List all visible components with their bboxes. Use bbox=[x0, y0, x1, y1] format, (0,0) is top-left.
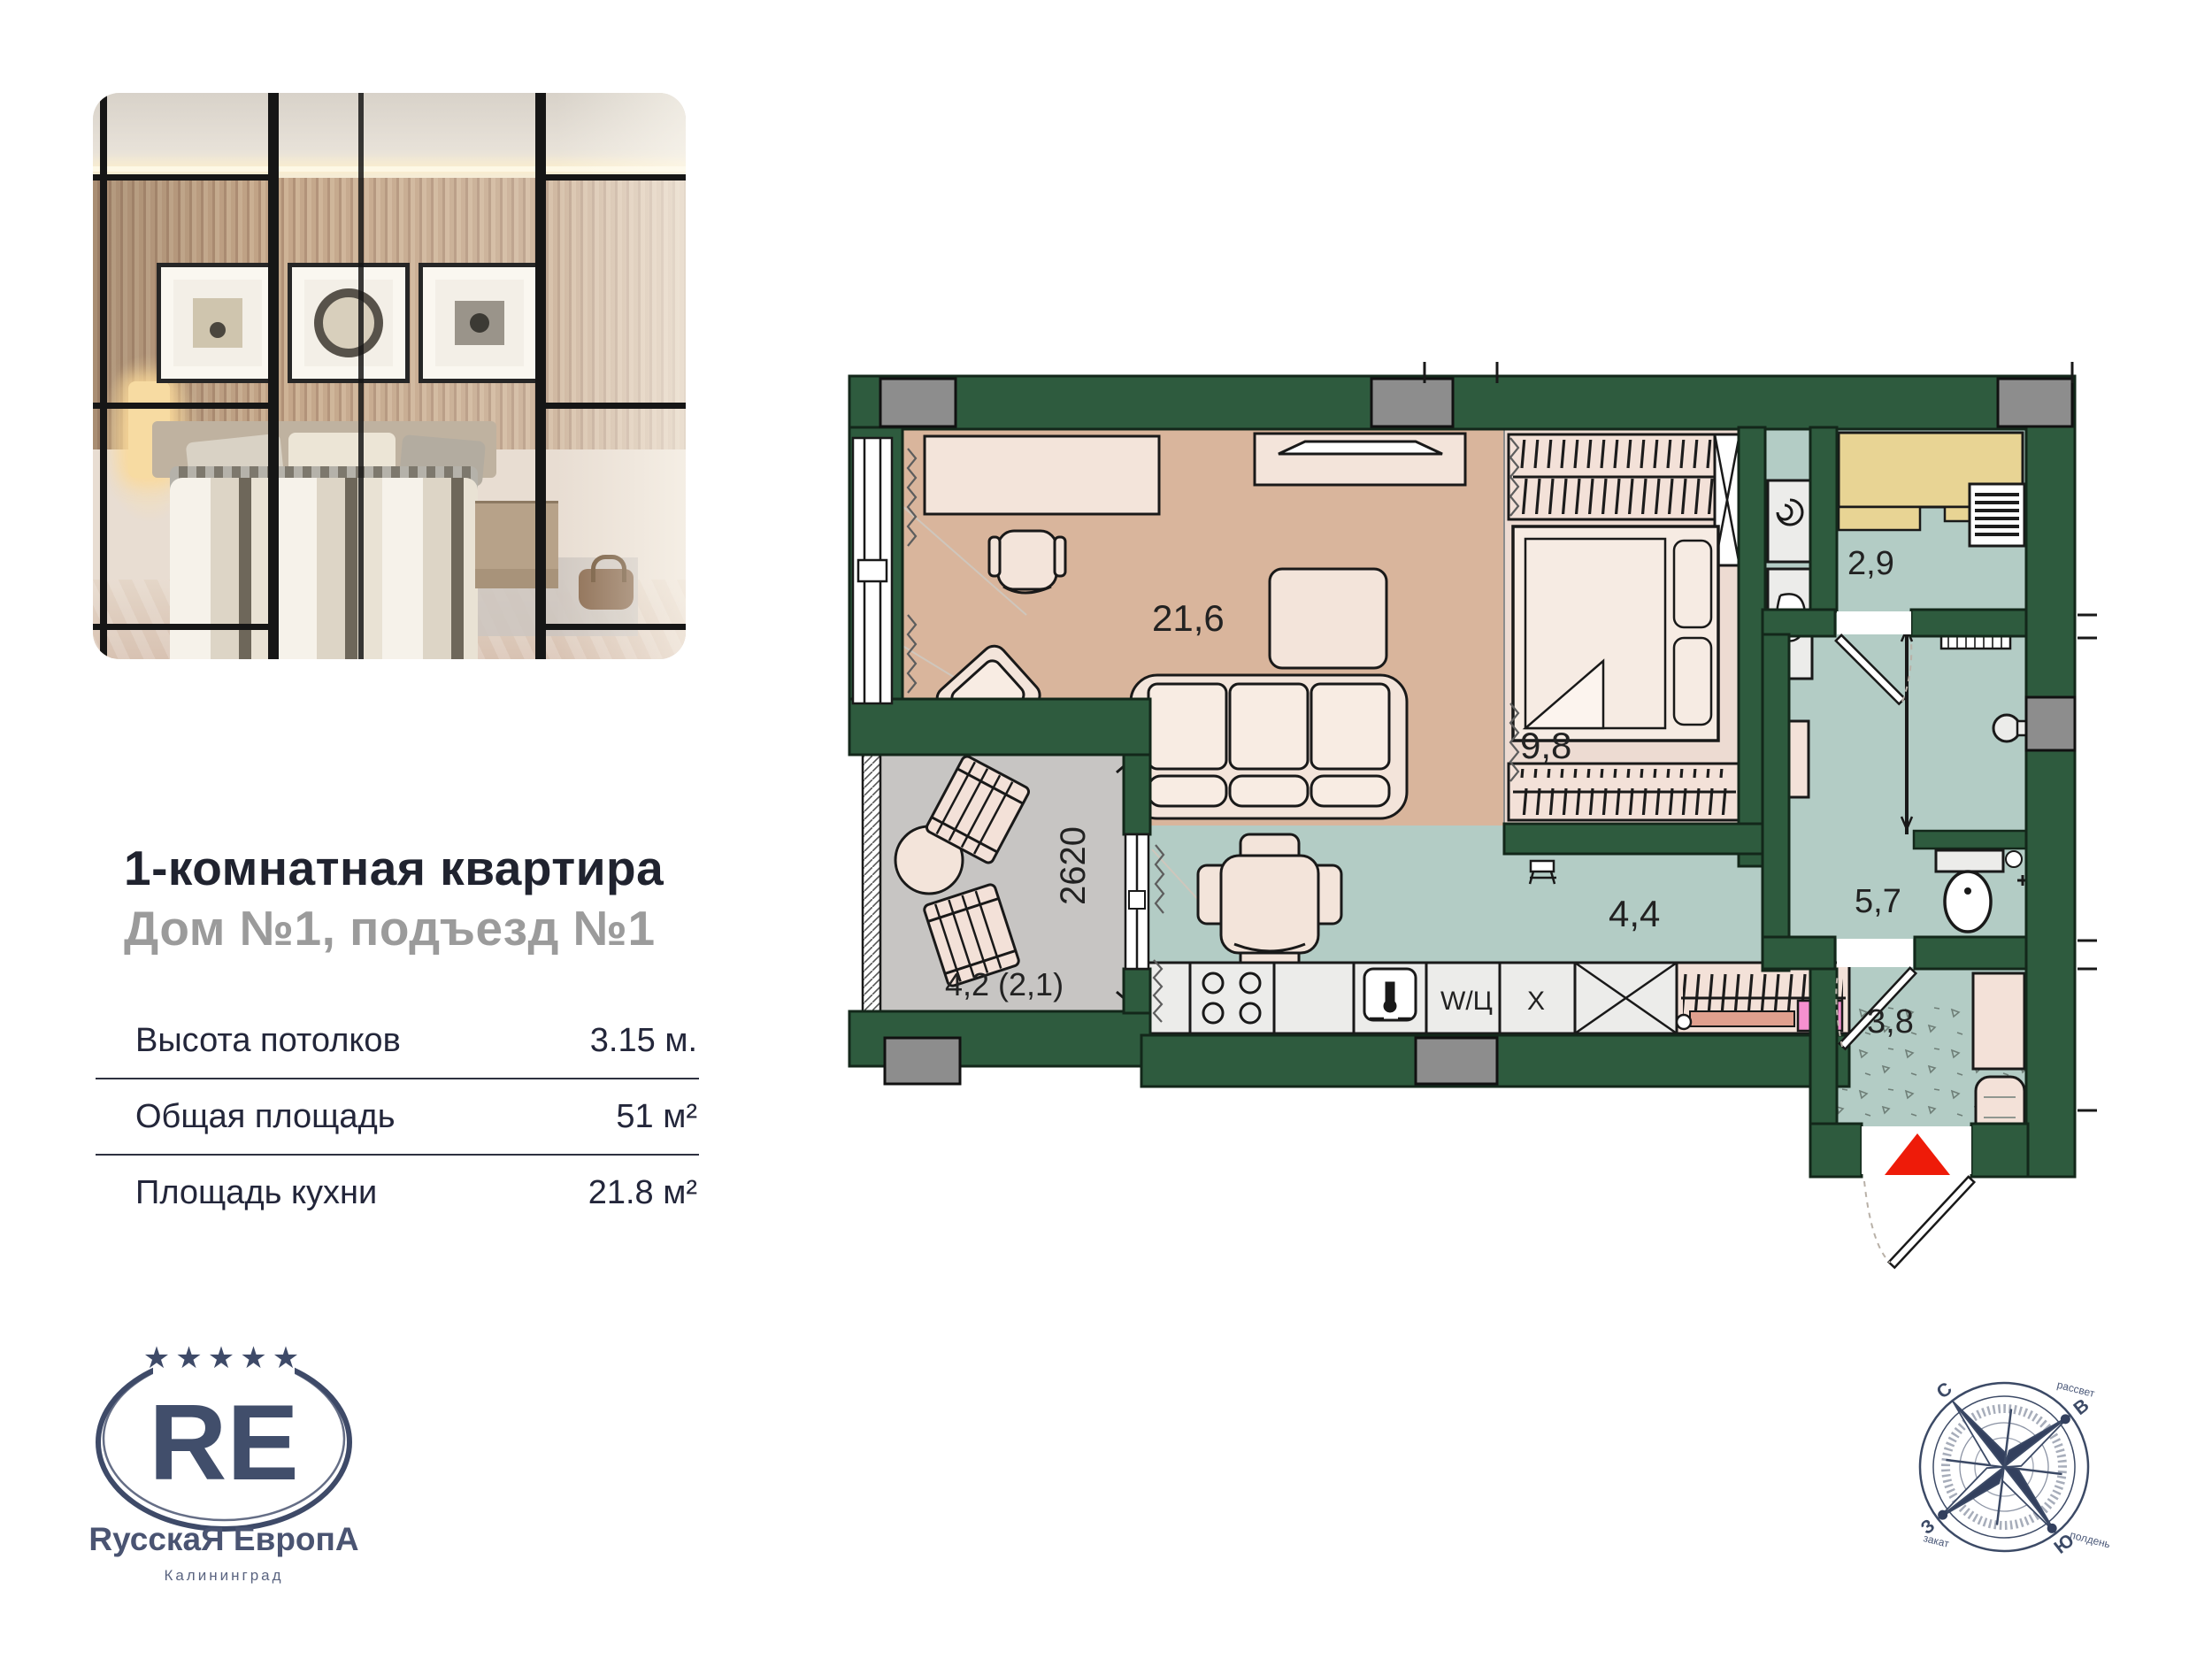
photo-art-sunburst bbox=[314, 288, 383, 357]
photo-mullion bbox=[93, 174, 279, 180]
room-label-balcony: 4,2 (2,1) bbox=[945, 966, 1064, 1002]
photo-mullion bbox=[535, 624, 686, 630]
photo-art-eclipse bbox=[470, 313, 489, 333]
balcony-railing bbox=[863, 755, 880, 1013]
room-label-bathroom: 5,7 bbox=[1855, 883, 1901, 920]
compass-rose: С В З Ю рассвет закат полдень bbox=[1893, 1352, 2115, 1582]
room-label-bedroom: 9,8 bbox=[1520, 725, 1571, 766]
sofa bbox=[1131, 675, 1407, 818]
logo-monogram: RE bbox=[149, 1382, 298, 1502]
photo-mullion bbox=[93, 403, 279, 409]
interior-photo bbox=[93, 93, 686, 659]
label-dishwasher: W/Ц bbox=[1440, 987, 1493, 1016]
spec-value: 21.8 м² bbox=[588, 1174, 699, 1212]
spec-label: Площадь кухни bbox=[96, 1174, 377, 1212]
stove bbox=[1190, 963, 1274, 1033]
balcony-dimension: 2620 bbox=[1054, 826, 1093, 905]
spec-value: 51 м² bbox=[616, 1098, 699, 1136]
compass-north: С bbox=[1933, 1379, 1956, 1402]
room-label-entry: 3,8 bbox=[1867, 1003, 1914, 1041]
room-label-storage: 2,9 bbox=[1847, 545, 1894, 582]
photo-bed bbox=[170, 478, 478, 659]
room-label-hall: 4,4 bbox=[1609, 893, 1660, 934]
photo-artwork-center bbox=[288, 263, 410, 383]
logo-stars: ★★★★★ bbox=[143, 1341, 304, 1375]
photo-art-dot bbox=[210, 322, 226, 338]
spec-label: Общая площадь bbox=[96, 1098, 396, 1136]
photo-mullion bbox=[535, 403, 686, 409]
spec-label: Высота потолков bbox=[96, 1022, 401, 1060]
page-subtitle: Дом №1, подъезд №1 bbox=[124, 899, 656, 957]
room-label-living: 21,6 bbox=[1152, 597, 1225, 639]
label-fridge: Х bbox=[1527, 987, 1545, 1016]
flat-listing-page: 1-комнатная квартира Дом №1, подъезд №1 … bbox=[0, 0, 2212, 1659]
photo-mullion bbox=[93, 624, 279, 630]
shower-head bbox=[1993, 715, 2020, 741]
compass-sunrise-label: рассвет bbox=[2055, 1379, 2096, 1400]
floor-plan: 21,6 9,8 2,9 5,7 4,4 3,8 4,2 (2,1) 2620 … bbox=[841, 349, 2097, 1287]
spec-table: Высота потолков 3.15 м. Общая площадь 51… bbox=[96, 1003, 699, 1230]
logo-brand-name: RусскаЯ ЕвропА bbox=[88, 1521, 358, 1557]
spec-row-ceiling: Высота потолков 3.15 м. bbox=[96, 1003, 699, 1079]
entrance-door-leaf bbox=[1889, 1177, 1975, 1268]
tv bbox=[1279, 442, 1442, 454]
spec-row-total-area: Общая площадь 51 м² bbox=[96, 1079, 699, 1156]
photo-artwork-right bbox=[419, 263, 541, 383]
page-title: 1-комнатная квартира bbox=[124, 839, 664, 897]
coffee-table bbox=[1270, 569, 1386, 668]
spec-row-kitchen-area: Площадь кухни 21.8 м² bbox=[96, 1156, 699, 1230]
desk-chair bbox=[989, 531, 1065, 593]
photo-artwork-left bbox=[157, 263, 279, 383]
logo-city: Калининград bbox=[164, 1567, 283, 1584]
compass-sunset-label: закат bbox=[1922, 1532, 1951, 1550]
developer-logo: ★★★★★ RE RусскаЯ ЕвропА Калининград bbox=[84, 1327, 367, 1593]
desk bbox=[925, 436, 1159, 514]
photo-mullion bbox=[358, 93, 364, 659]
spec-value: 3.15 м. bbox=[590, 1022, 699, 1060]
photo-mullion bbox=[535, 174, 686, 180]
kitchen-row bbox=[1146, 963, 1677, 1033]
